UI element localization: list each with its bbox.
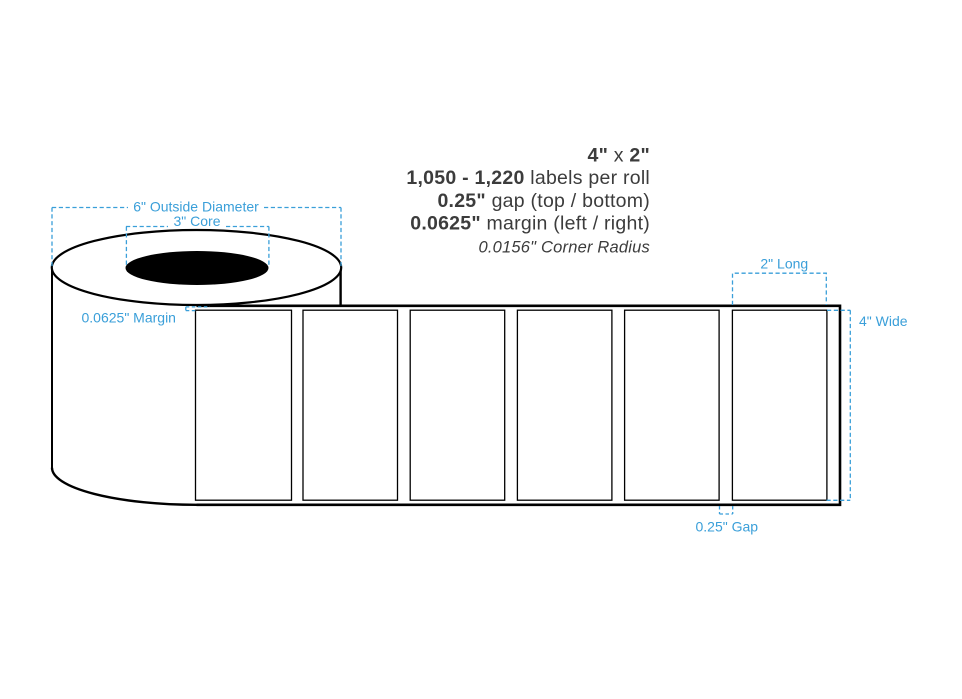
svg-text:4" x 2": 4" x 2": [587, 144, 650, 166]
svg-text:0.0625" Margin: 0.0625" Margin: [82, 310, 176, 326]
svg-text:0.25" Gap: 0.25" Gap: [696, 518, 759, 534]
svg-text:0.25" gap (top / bottom): 0.25" gap (top / bottom): [437, 190, 650, 212]
svg-text:1,050 - 1,220 labels per roll: 1,050 - 1,220 labels per roll: [406, 167, 650, 189]
svg-text:0.0156" Corner Radius: 0.0156" Corner Radius: [479, 238, 651, 256]
svg-text:3" Core: 3" Core: [174, 213, 221, 229]
svg-text:0.0625" margin (left / right): 0.0625" margin (left / right): [410, 213, 650, 235]
svg-text:4" Wide: 4" Wide: [859, 313, 908, 329]
svg-text:2" Long: 2" Long: [760, 255, 808, 271]
